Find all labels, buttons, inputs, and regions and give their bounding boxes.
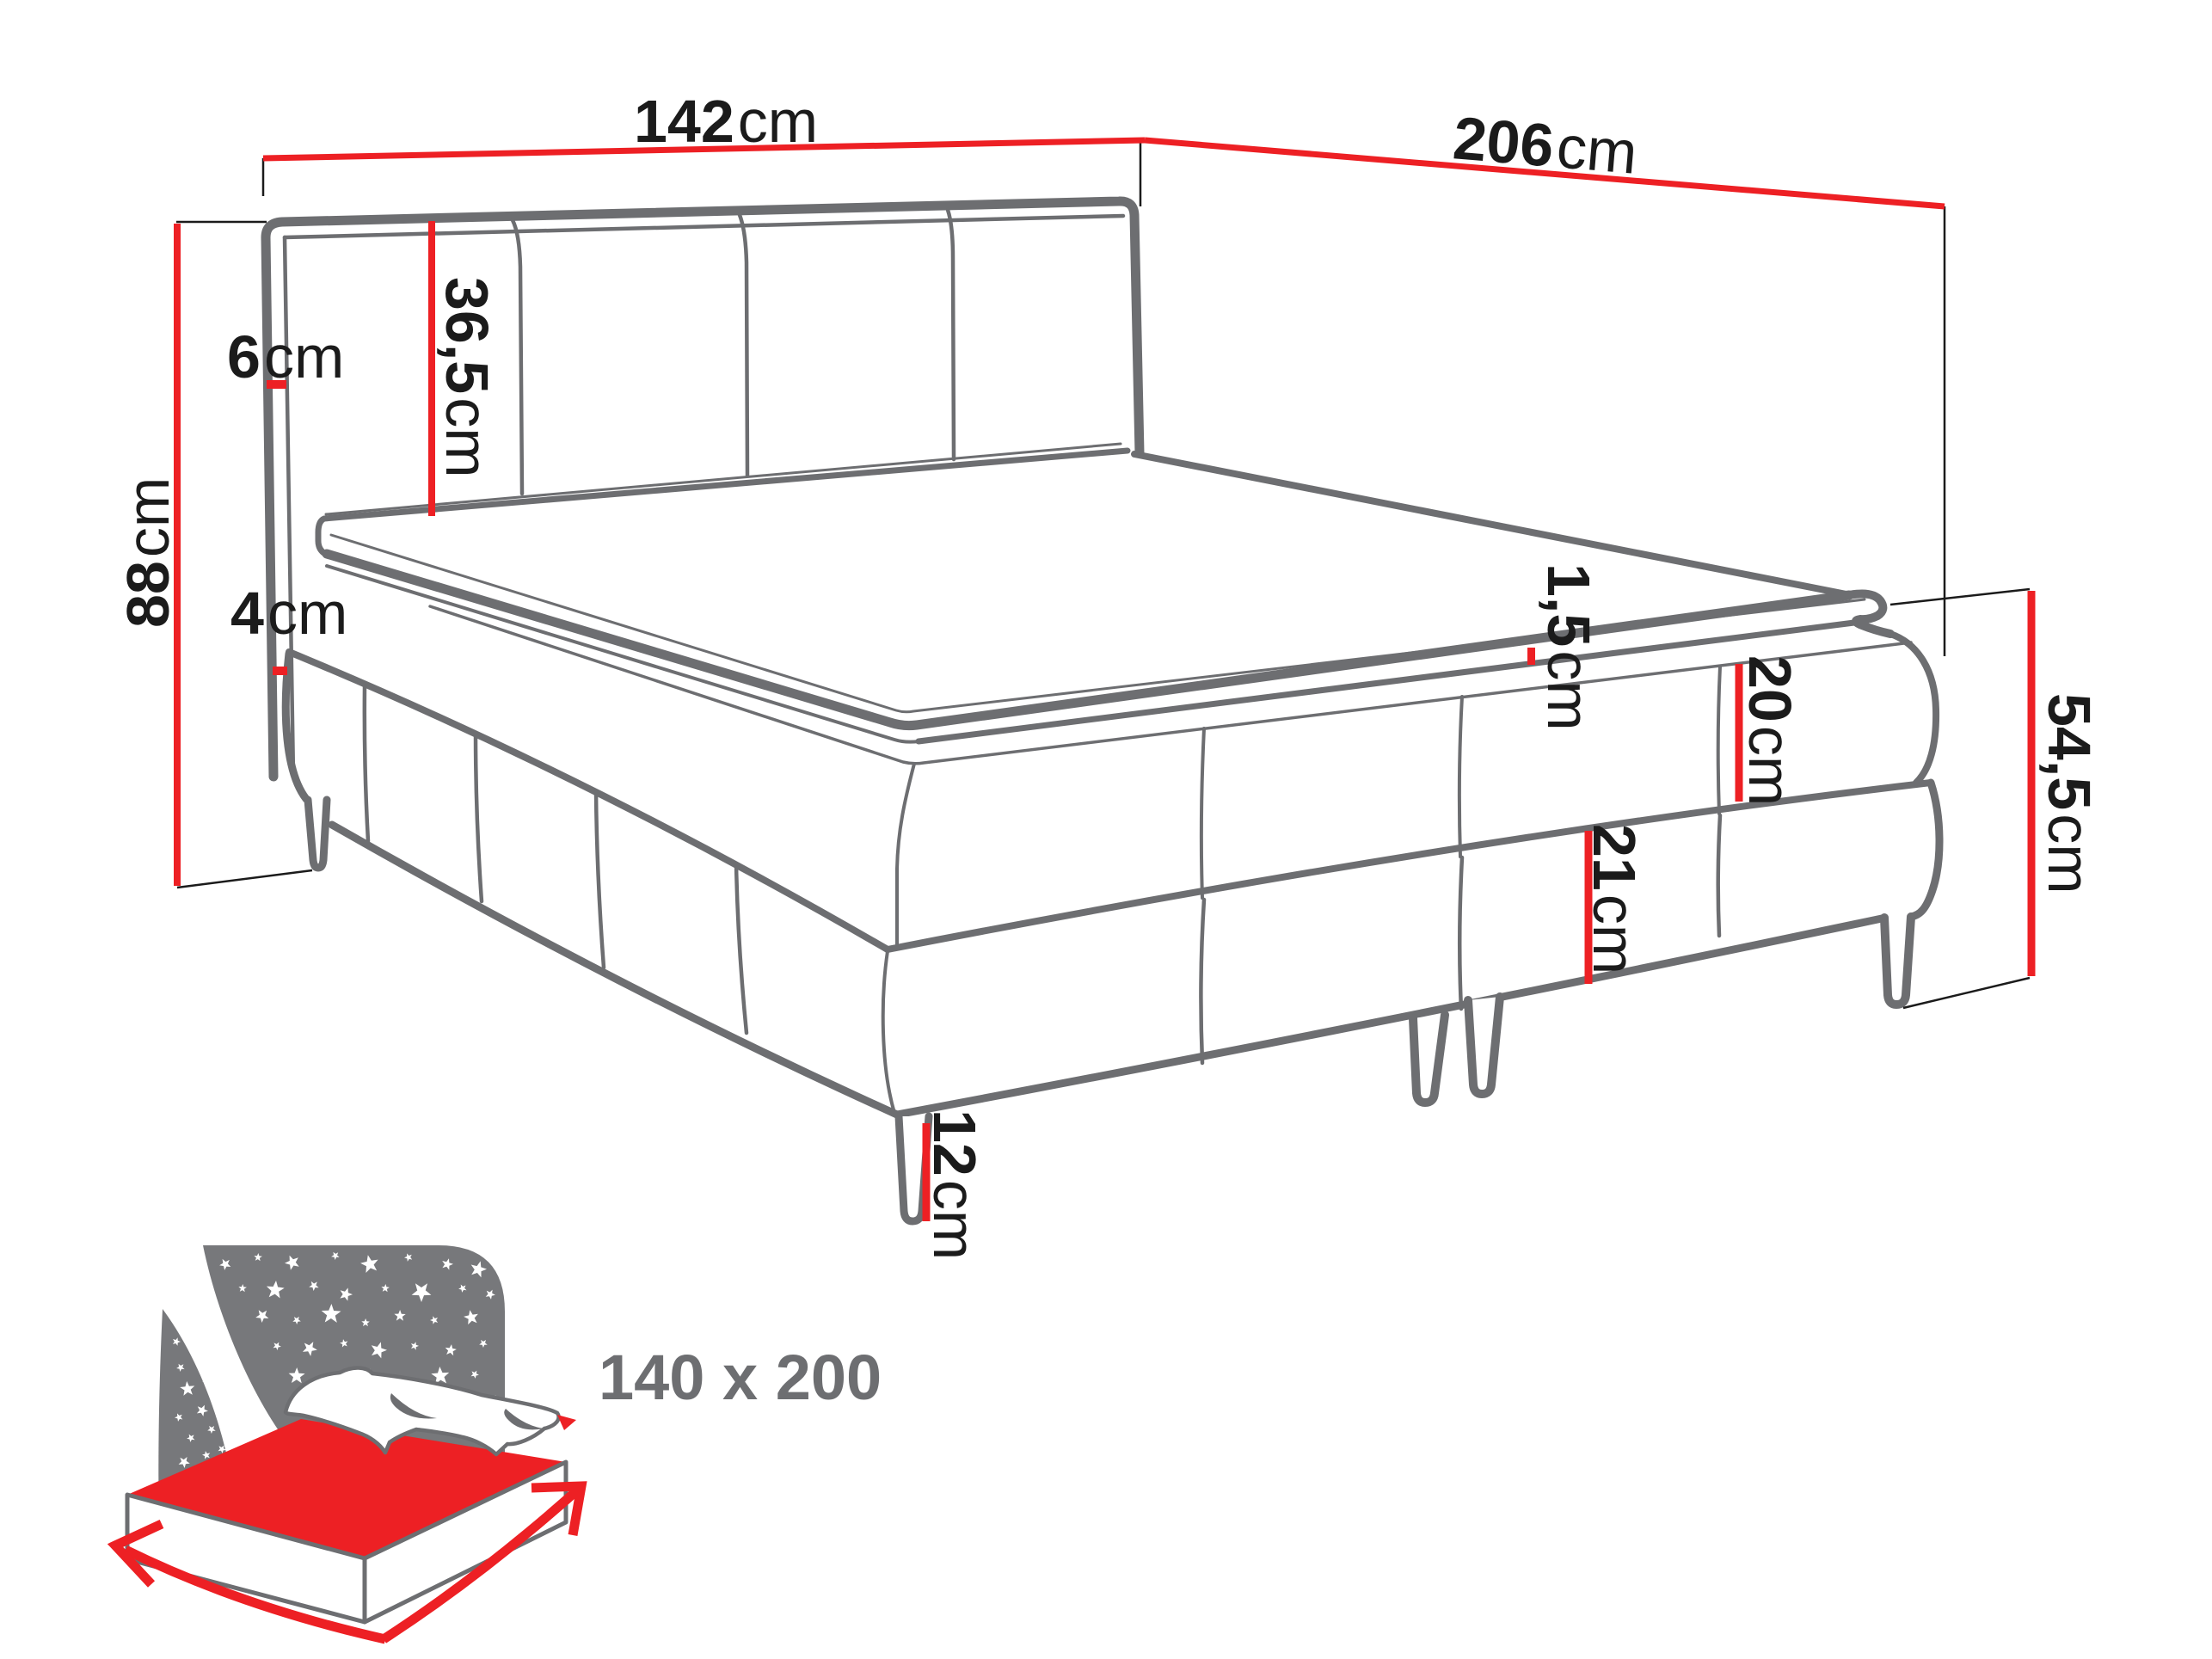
svg-text:140 x 200: 140 x 200	[599, 1342, 882, 1413]
svg-text:54,5cm: 54,5cm	[2036, 693, 2103, 894]
svg-text:21cm: 21cm	[1581, 824, 1648, 974]
svg-text:88cm: 88cm	[114, 477, 181, 628]
svg-text:142cm: 142cm	[634, 88, 818, 155]
svg-text:6cm: 6cm	[227, 323, 344, 390]
svg-text:36,5cm: 36,5cm	[433, 277, 501, 478]
svg-text:12cm: 12cm	[921, 1109, 988, 1260]
svg-text:20cm: 20cm	[1736, 655, 1803, 806]
svg-text:4cm: 4cm	[230, 580, 347, 647]
